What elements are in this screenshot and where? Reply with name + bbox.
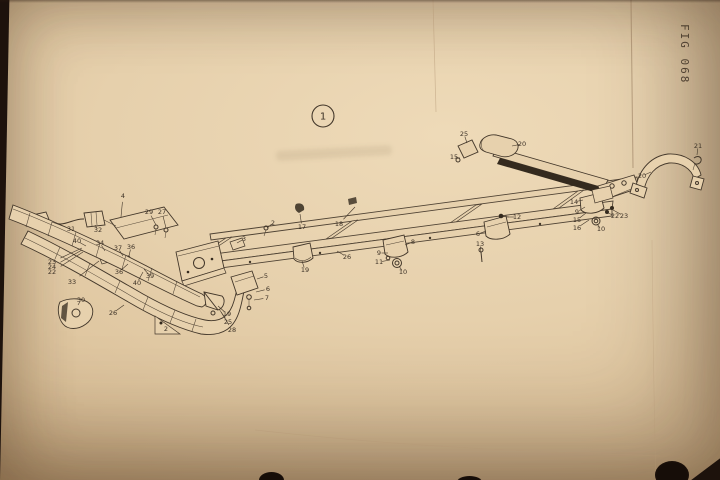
- hose-plug-32: [84, 211, 105, 227]
- rivet: [429, 237, 431, 239]
- part-number-20: 20: [518, 140, 526, 148]
- part-number-40: 40: [73, 237, 81, 245]
- bolt-11: [386, 256, 390, 260]
- part-number-6: 6: [476, 230, 480, 238]
- hook-21: [694, 157, 701, 164]
- page-top-shadow: [0, 0, 720, 3]
- chassis-frame: [183, 177, 638, 273]
- part-number-9: 9: [377, 249, 381, 257]
- bolt-6: [247, 295, 252, 300]
- leader-line: [257, 277, 263, 279]
- part-number-22: 22: [611, 212, 619, 220]
- part-number-39: 39: [146, 272, 154, 280]
- bracket-bolt-28: [211, 311, 215, 315]
- figure-number-label: FIG 068: [678, 24, 691, 84]
- hanger-19: [293, 243, 313, 262]
- rivet: [187, 271, 190, 274]
- bolt-27: [164, 228, 168, 232]
- part-number-12: 12: [513, 213, 521, 221]
- leader-line: [256, 290, 265, 292]
- clip-18: [348, 197, 357, 205]
- part-number-25: 25: [460, 130, 468, 138]
- part-number-32: 32: [94, 226, 102, 234]
- bumper-bracket: [204, 292, 224, 310]
- part-number-3: 3: [242, 235, 246, 243]
- part-number-2: 2: [164, 325, 168, 333]
- part-number-13: 13: [476, 240, 484, 248]
- part-number-21: 21: [694, 142, 702, 150]
- part-number-6: 6: [266, 285, 270, 293]
- pin-13: [481, 252, 482, 262]
- bolt-12: [499, 214, 504, 219]
- part-number-26: 26: [343, 253, 351, 261]
- part-number-20: 20: [638, 172, 646, 180]
- bracket-5: [231, 271, 258, 295]
- bolt-23: [610, 206, 614, 210]
- part-number-22: 22: [48, 268, 56, 276]
- part-number-30: 30: [77, 296, 85, 304]
- part-number-14: 14: [570, 198, 578, 206]
- part-number-17: 17: [298, 223, 306, 231]
- gusset-hole: [160, 322, 163, 325]
- part-number-36: 36: [127, 243, 135, 251]
- part-number-9: 9: [575, 208, 579, 216]
- part-number-25: 25: [224, 318, 232, 326]
- part-number-33: 33: [68, 278, 76, 286]
- bracket-25: [458, 140, 478, 158]
- assembly-number: 1: [320, 112, 326, 123]
- part-number-5: 5: [264, 272, 268, 280]
- part-number-26: 26: [109, 309, 117, 317]
- part-number-7: 7: [265, 294, 269, 302]
- rivet: [249, 261, 251, 263]
- part-number-23: 23: [620, 212, 628, 220]
- part-number-15: 15: [450, 153, 458, 161]
- part-number-31: 31: [67, 225, 75, 233]
- part-number-18: 18: [335, 220, 343, 228]
- leader-line: [382, 260, 390, 261]
- exploded-parts-diagram: 4292731324034373623242233302636394021925…: [0, 0, 720, 480]
- part-number-15: 15: [573, 216, 581, 224]
- leader-line: [116, 305, 124, 311]
- part-number-40: 40: [133, 279, 141, 287]
- part-number-10: 10: [399, 268, 407, 276]
- bush-center: [594, 219, 598, 223]
- part-number-28: 28: [228, 326, 236, 334]
- part-number-16: 16: [573, 224, 581, 232]
- part-number-8: 8: [411, 238, 415, 246]
- part-number-10: 10: [597, 225, 605, 233]
- nut-7: [247, 306, 251, 310]
- strap-end-plate: [690, 176, 704, 190]
- rivet: [211, 258, 214, 261]
- part-number-29: 29: [145, 208, 153, 216]
- part-number-36: 36: [115, 268, 123, 276]
- part-number-37: 37: [114, 244, 122, 252]
- part-number-4: 4: [121, 192, 125, 200]
- shackle-17: [295, 203, 304, 213]
- rivet: [319, 252, 321, 254]
- part-number-2: 2: [271, 219, 275, 227]
- leader-line: [121, 202, 122, 217]
- photo-of-catalog-page: 4292731324034373623242233302636394021925…: [0, 0, 720, 480]
- bush-10: [393, 259, 402, 268]
- leader-line: [580, 220, 589, 226]
- part-number-19: 19: [301, 266, 309, 274]
- part-number-11: 11: [375, 258, 383, 266]
- leader-line: [254, 299, 263, 300]
- part-number-27: 27: [158, 208, 166, 216]
- rivet: [539, 223, 541, 225]
- bush-center: [395, 261, 399, 265]
- part-number-34: 34: [96, 239, 104, 247]
